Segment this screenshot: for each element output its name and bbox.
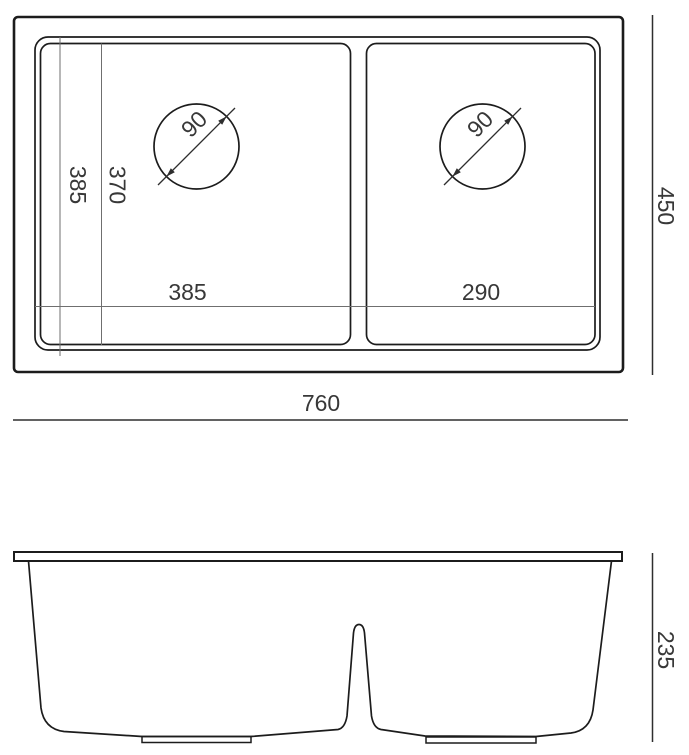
right-drain: 90 (440, 104, 525, 189)
overall-depth-label: 450 (653, 187, 679, 225)
rim-plate (14, 552, 622, 561)
left-bowl-length-outer-label: 385 (65, 166, 91, 204)
left-bowl-width-label: 385 (168, 279, 206, 305)
basin-profile (29, 561, 612, 737)
front-view: 235 (14, 552, 679, 743)
drawing-canvas: 90 90 385 370 385 290 760 450 (0, 0, 689, 755)
sink-technical-drawing: 90 90 385 370 385 290 760 450 (0, 0, 689, 755)
top-view: 90 90 385 370 385 290 760 450 (13, 15, 679, 420)
overall-height-label: 235 (653, 631, 679, 669)
right-bowl-width-label: 290 (462, 279, 500, 305)
overall-width-label: 760 (302, 390, 340, 416)
left-drain: 90 (154, 104, 239, 189)
left-bottom-pad (142, 737, 251, 743)
left-bowl-length-inner-label: 370 (105, 166, 131, 204)
right-bottom-pad (426, 737, 536, 743)
